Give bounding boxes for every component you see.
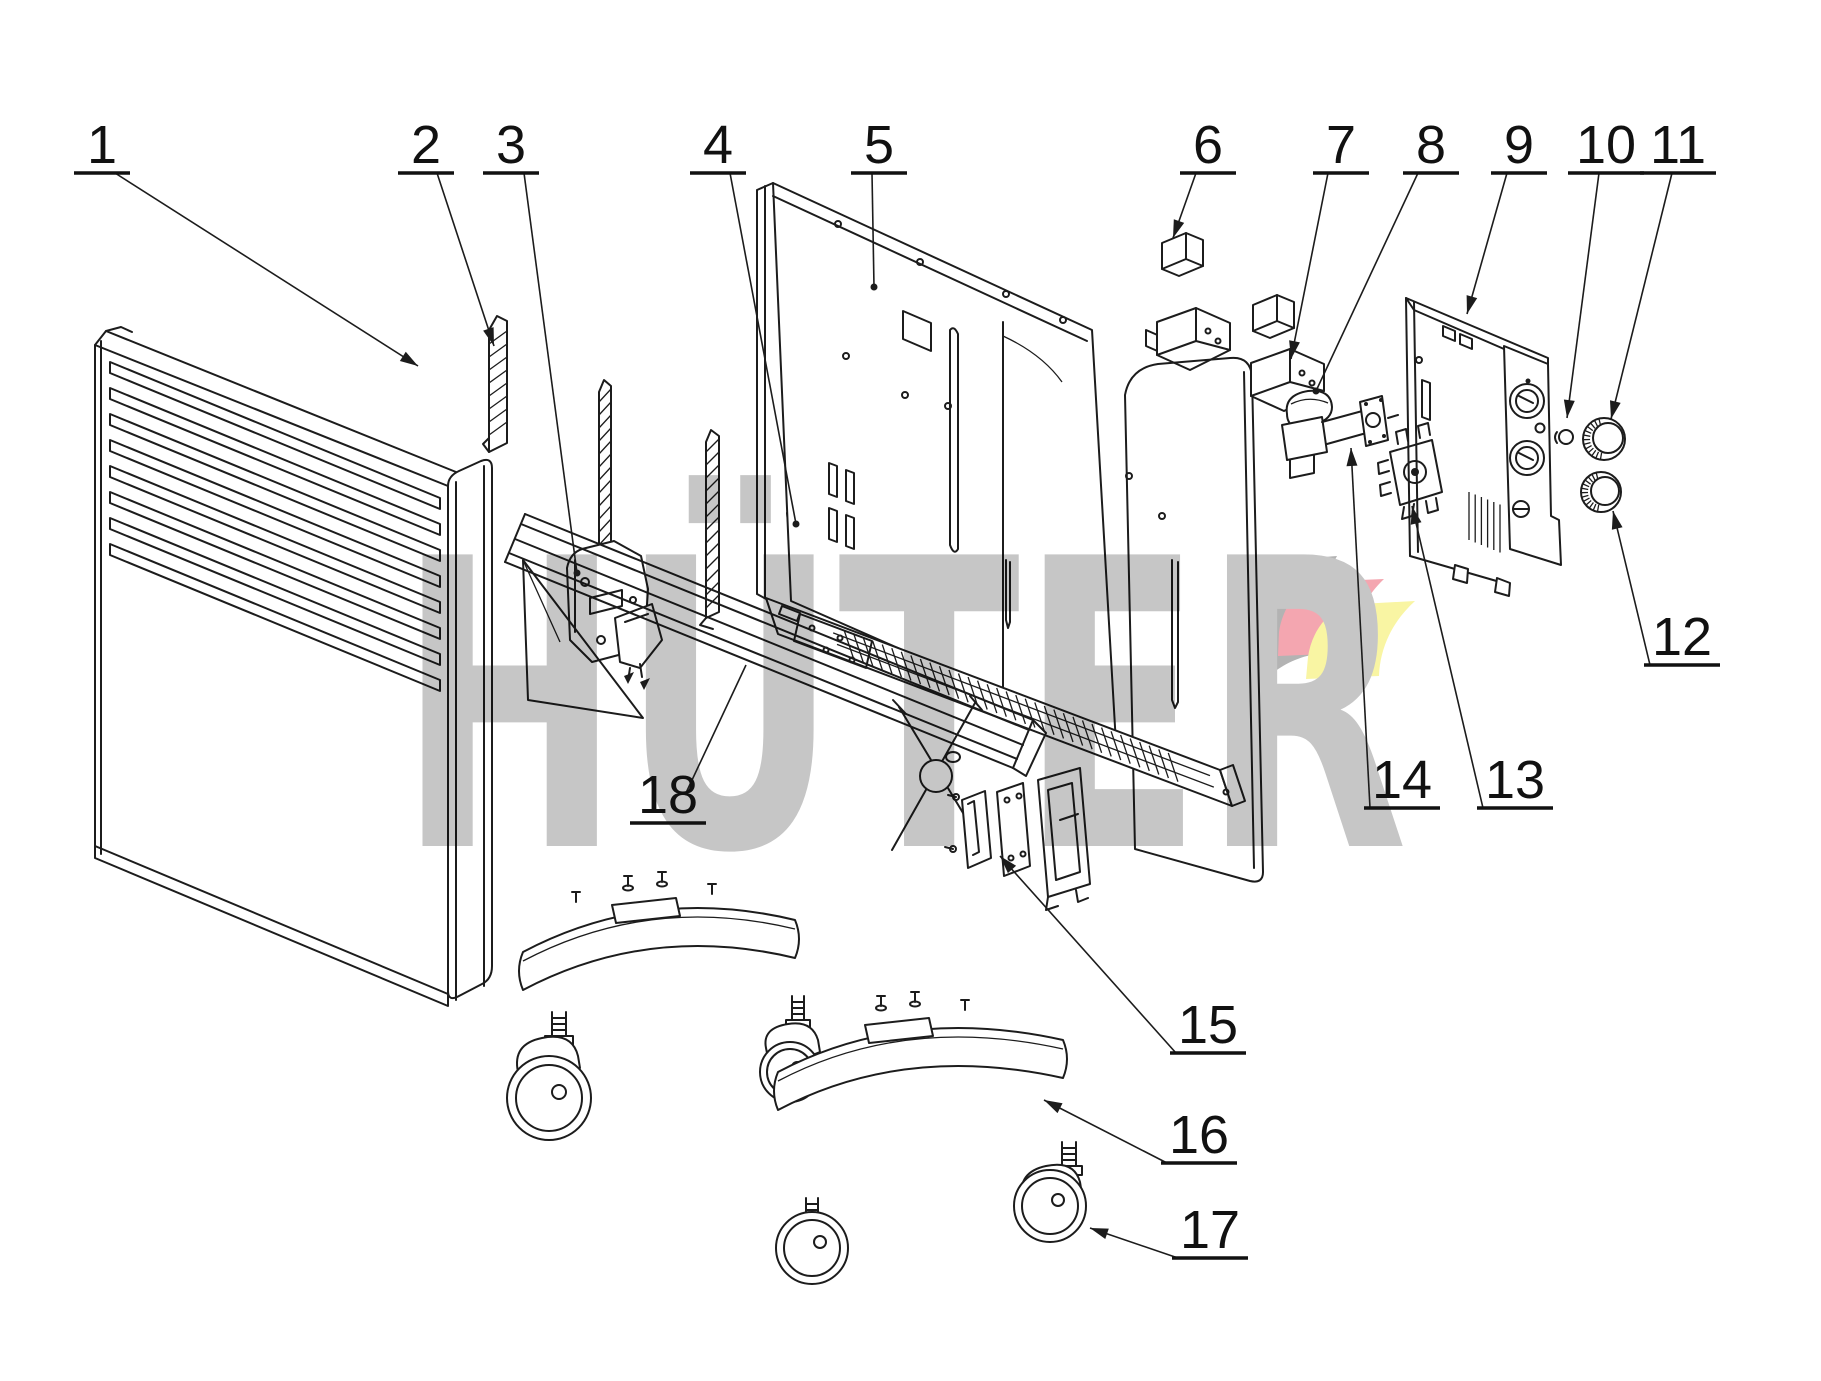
leader-line-1 bbox=[115, 173, 418, 366]
watermark-text: HÜTER bbox=[398, 471, 1408, 941]
arrowhead-16 bbox=[1044, 1100, 1063, 1113]
part-number-2: 2 bbox=[411, 115, 441, 175]
part-number-12: 12 bbox=[1652, 607, 1712, 667]
part-number-6: 6 bbox=[1193, 115, 1223, 175]
arrowhead-17 bbox=[1090, 1228, 1109, 1239]
part-number-17: 17 bbox=[1180, 1200, 1240, 1260]
arrowhead-12 bbox=[1612, 511, 1623, 530]
leader-line-2 bbox=[437, 173, 494, 346]
arrowhead-10 bbox=[1564, 399, 1575, 418]
part-number-7: 7 bbox=[1326, 115, 1356, 175]
arrowhead-9 bbox=[1467, 295, 1478, 314]
leader-line-9 bbox=[1467, 173, 1507, 314]
part-number-11: 11 bbox=[1650, 115, 1706, 175]
part-number-1: 1 bbox=[87, 115, 117, 175]
wall-bracket-small-2 bbox=[1253, 295, 1294, 338]
part-number-15: 15 bbox=[1178, 995, 1238, 1055]
part-number-10: 10 bbox=[1576, 115, 1636, 175]
part-number-18: 18 bbox=[638, 765, 698, 825]
part-number-3: 3 bbox=[496, 115, 526, 175]
thermostat-assembly bbox=[1282, 391, 1398, 478]
leader-line-10 bbox=[1567, 173, 1599, 418]
part-number-13: 13 bbox=[1485, 750, 1545, 810]
leader-line-12 bbox=[1613, 511, 1650, 665]
indicator-cap bbox=[1555, 430, 1573, 444]
leader-line-8 bbox=[1316, 173, 1418, 391]
leader-line-7 bbox=[1291, 173, 1328, 359]
trim-strip bbox=[483, 316, 507, 452]
arrowhead-1 bbox=[400, 352, 418, 366]
part-number-9: 9 bbox=[1504, 115, 1534, 175]
part-number-5: 5 bbox=[864, 115, 894, 175]
arrowhead-14 bbox=[1346, 448, 1357, 466]
leader-dot-4 bbox=[793, 521, 800, 528]
knob-lower bbox=[1581, 472, 1621, 512]
foot-rear bbox=[760, 992, 1067, 1110]
caster-1 bbox=[507, 1012, 591, 1140]
part-number-14: 14 bbox=[1372, 750, 1432, 810]
leader-dot-8 bbox=[1313, 388, 1320, 395]
arrowhead-13 bbox=[1411, 506, 1422, 525]
part-number-8: 8 bbox=[1416, 115, 1446, 175]
part-number-16: 16 bbox=[1169, 1105, 1229, 1165]
leader-line-11 bbox=[1611, 173, 1672, 419]
wall-bracket-small-1 bbox=[1162, 233, 1203, 276]
brand-watermark: HÜTER bbox=[398, 471, 1415, 941]
leader-dot-3 bbox=[574, 570, 581, 577]
caster-2 bbox=[776, 1198, 848, 1284]
arrowhead-11 bbox=[1610, 400, 1621, 419]
knob-upper bbox=[1583, 418, 1625, 460]
part-number-4: 4 bbox=[703, 115, 733, 175]
leader-dot-5 bbox=[871, 284, 878, 291]
diagram-page: HÜTER 123456789101112131415161718 bbox=[0, 0, 1821, 1381]
caster-3 bbox=[1014, 1142, 1086, 1242]
